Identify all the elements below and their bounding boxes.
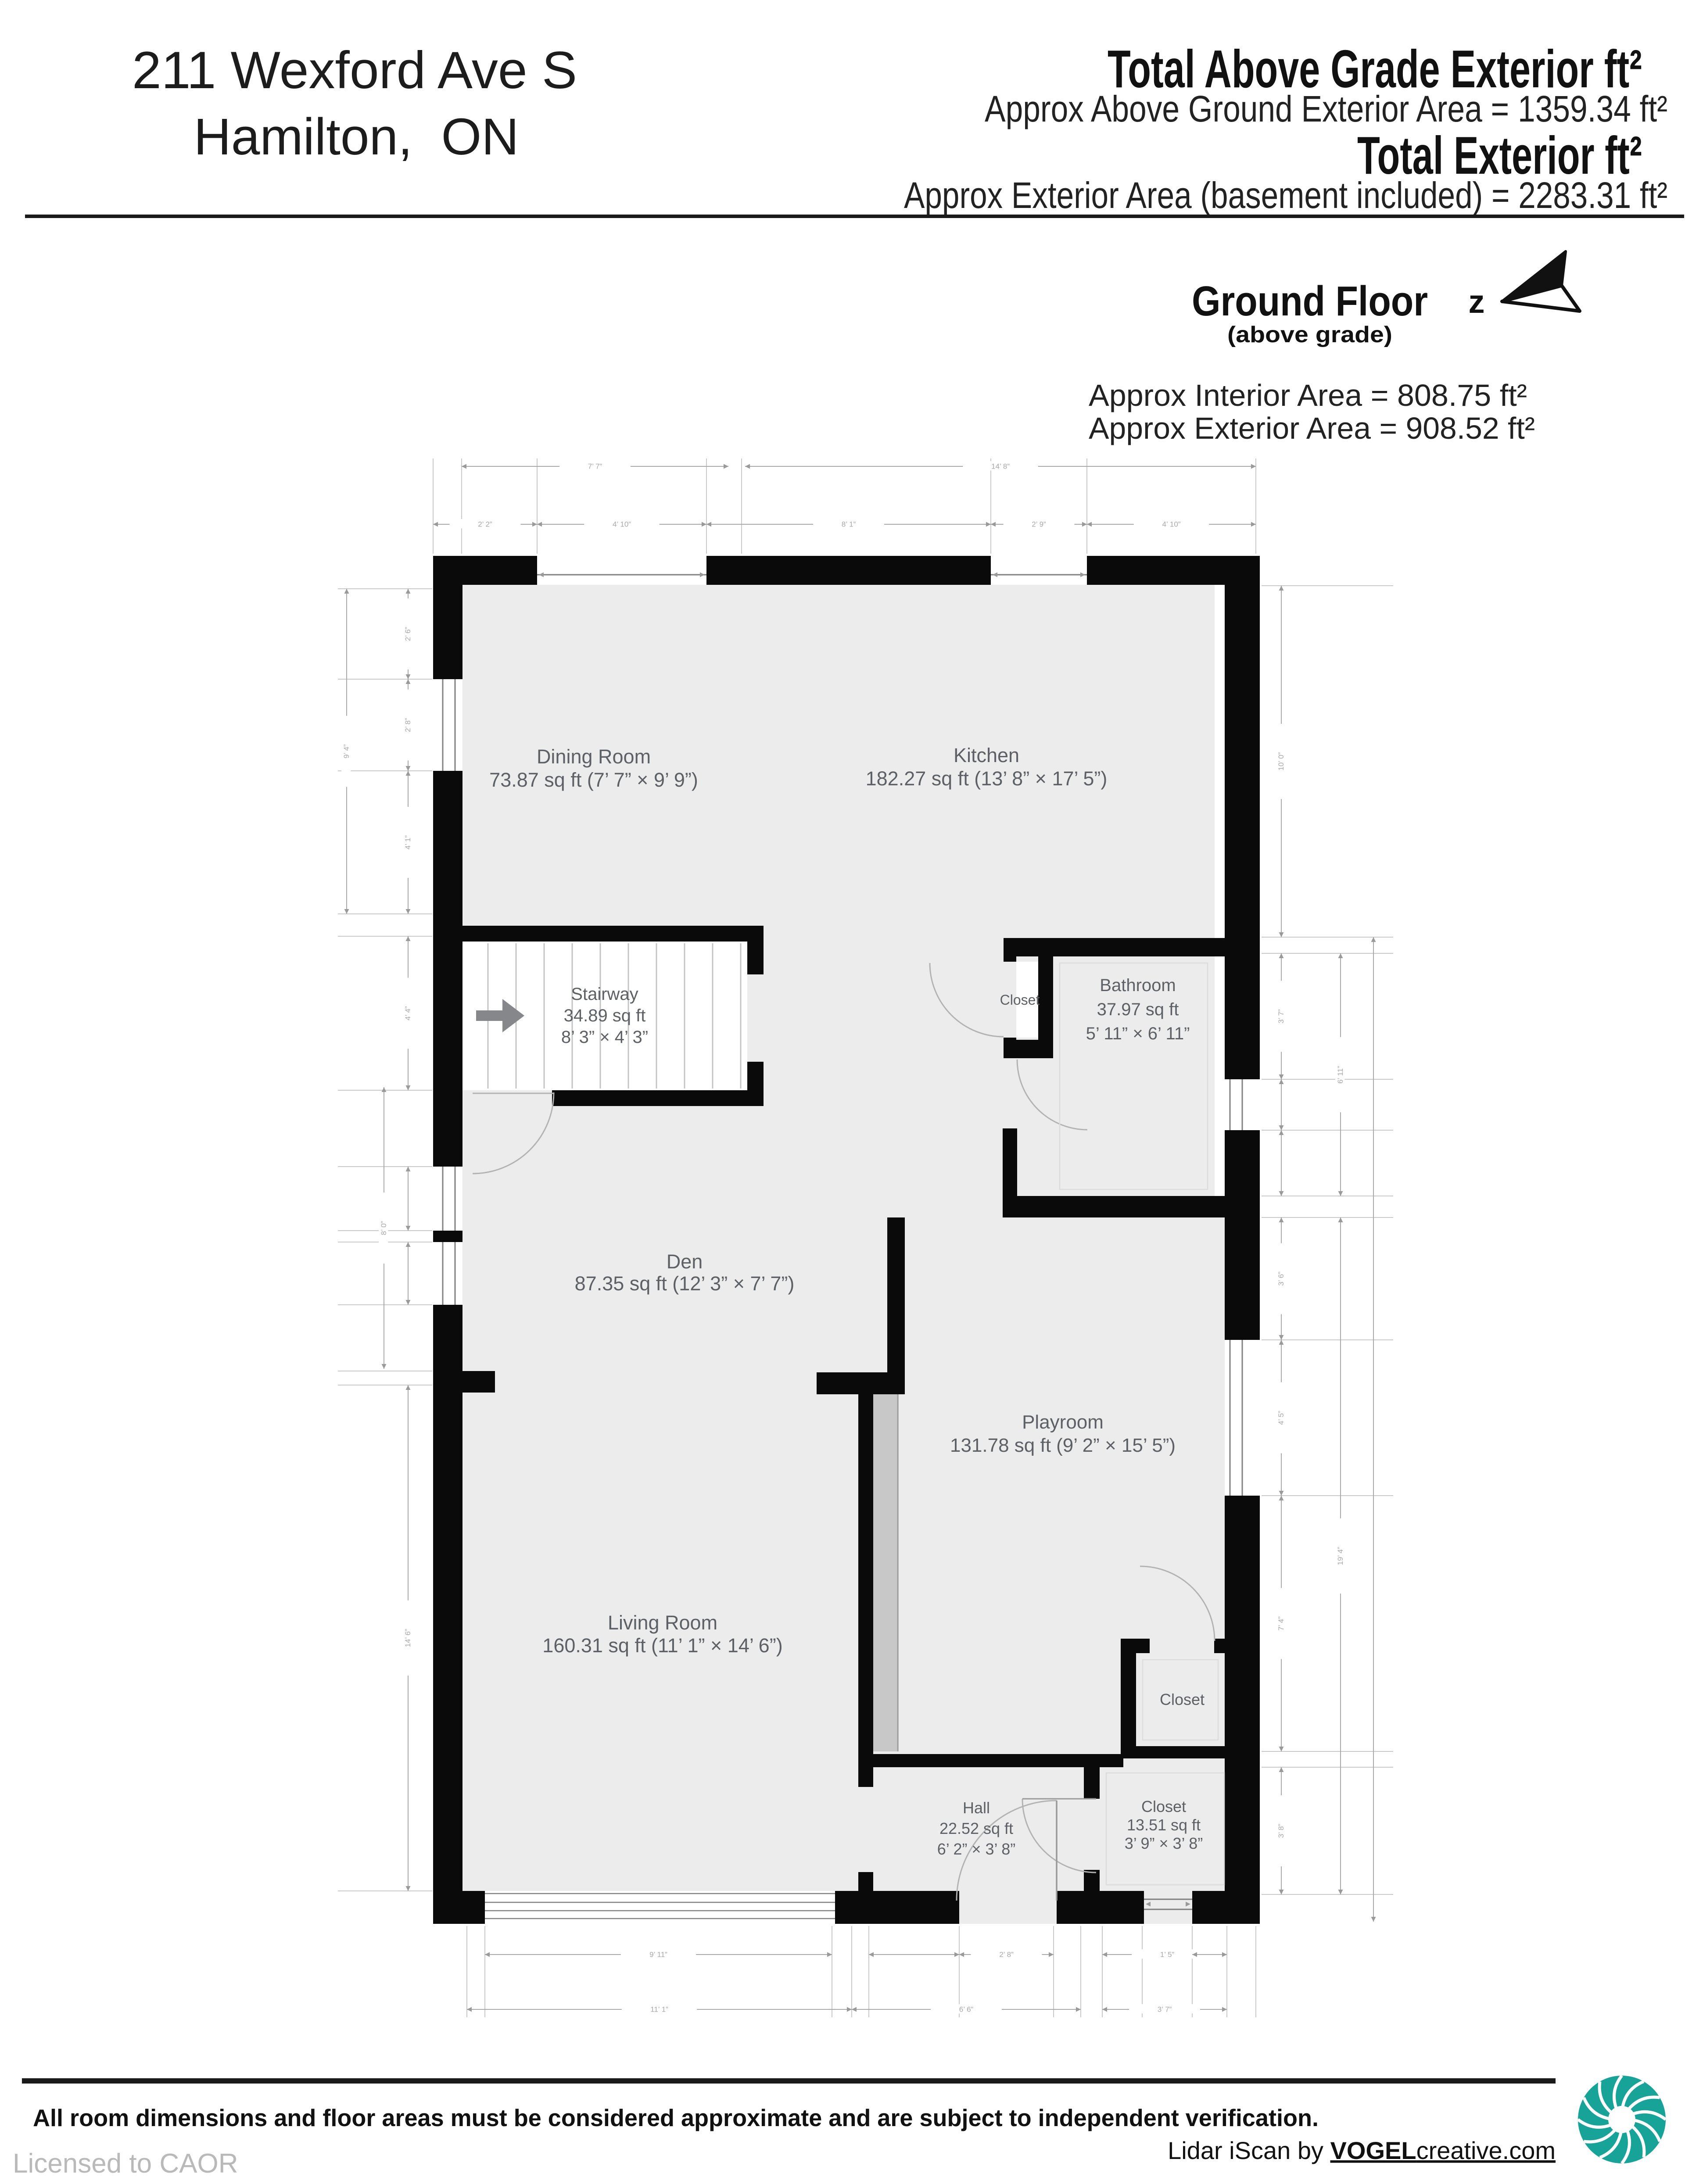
svg-text:10’ 0”: 10’ 0”: [1277, 752, 1285, 770]
svg-text:2’ 2”: 2’ 2”: [478, 520, 492, 528]
svg-text:Ground Floor: Ground Floor: [1192, 278, 1428, 325]
svg-text:2’ 8”: 2’ 8”: [404, 718, 412, 732]
svg-text:Kitchen: Kitchen: [954, 744, 1019, 766]
svg-text:131.78 sq ft (9’ 2” × 15’ 5”): 131.78 sq ft (9’ 2” × 15’ 5”): [950, 1435, 1176, 1456]
svg-text:3’ 7”: 3’ 7”: [1158, 2005, 1172, 2013]
svg-text:2’ 6”: 2’ 6”: [404, 627, 412, 641]
svg-text:4’ 10”: 4’ 10”: [613, 520, 631, 528]
svg-text:Approx Exterior Area = 908.52: Approx Exterior Area = 908.52 ft²: [1089, 411, 1535, 445]
svg-text:2’ 9”: 2’ 9”: [1032, 520, 1046, 528]
svg-text:Approx Above Ground Exterior A: Approx Above Ground Exterior Area = 1359…: [985, 88, 1667, 129]
svg-text:8’ 0”: 8’ 0”: [380, 1221, 388, 1235]
svg-text:7’ 7”: 7’ 7”: [588, 462, 602, 470]
svg-text:4’ 4”: 4’ 4”: [404, 1006, 412, 1020]
svg-text:Approx Interior Area = 808.75: Approx Interior Area = 808.75 ft²: [1089, 378, 1527, 412]
svg-text:13.51 sq ft: 13.51 sq ft: [1127, 1816, 1201, 1834]
svg-text:Lidar iScan by VOGELcreative.c: Lidar iScan by VOGELcreative.com: [1168, 2137, 1556, 2164]
svg-text:Dining Room: Dining Room: [537, 745, 651, 768]
svg-text:73.87 sq ft (7’ 7” × 9’ 9”): 73.87 sq ft (7’ 7” × 9’ 9”): [489, 769, 698, 791]
svg-text:z: z: [1469, 283, 1485, 320]
svg-text:Closet: Closet: [1141, 1797, 1186, 1815]
svg-text:Living Room: Living Room: [608, 1611, 717, 1634]
svg-text:All room dimensions and floor: All room dimensions and floor areas must…: [33, 2104, 1319, 2131]
svg-text:1’ 5”: 1’ 5”: [1160, 1950, 1175, 1958]
svg-text:Approx Exterior Area (basement: Approx Exterior Area (basement included)…: [904, 175, 1667, 216]
svg-text:87.35 sq ft (12’ 3” × 7’ 7”): 87.35 sq ft (12’ 3” × 7’ 7”): [575, 1272, 795, 1295]
svg-text:Closet: Closet: [1000, 992, 1040, 1008]
svg-text:3’ 6”: 3’ 6”: [1277, 1271, 1285, 1286]
svg-text:14’ 6”: 14’ 6”: [404, 1629, 412, 1647]
svg-text:Licensed to CAOR: Licensed to CAOR: [13, 2148, 238, 2179]
svg-text:Playroom: Playroom: [1022, 1411, 1104, 1433]
svg-text:Hamilton, ON: Hamilton, ON: [194, 108, 519, 166]
svg-text:8’ 3” × 4’ 3”: 8’ 3” × 4’ 3”: [561, 1028, 648, 1047]
svg-text:14’ 8”: 14’ 8”: [991, 462, 1010, 470]
svg-text:19’ 4”: 19’ 4”: [1336, 1547, 1344, 1565]
svg-text:Hall: Hall: [963, 1799, 990, 1817]
svg-text:4’ 1”: 4’ 1”: [404, 835, 412, 849]
svg-text:(above grade): (above grade): [1227, 322, 1392, 347]
svg-text:5’ 11” × 6’ 11”: 5’ 11” × 6’ 11”: [1086, 1024, 1190, 1043]
svg-text:182.27 sq ft (13’ 8” × 17’ 5”): 182.27 sq ft (13’ 8” × 17’ 5”): [866, 767, 1108, 790]
svg-text:6’ 2” × 3’ 8”: 6’ 2” × 3’ 8”: [937, 1840, 1015, 1858]
svg-text:160.31 sq ft (11’ 1” × 14’ 6”): 160.31 sq ft (11’ 1” × 14’ 6”): [542, 1634, 782, 1657]
svg-text:3’ 9” × 3’ 8”: 3’ 9” × 3’ 8”: [1125, 1834, 1203, 1852]
svg-text:Stairway: Stairway: [571, 985, 638, 1004]
svg-text:37.97 sq ft: 37.97 sq ft: [1097, 1000, 1179, 1019]
svg-text:8’ 1”: 8’ 1”: [842, 520, 856, 528]
svg-text:4’ 5”: 4’ 5”: [1277, 1411, 1285, 1425]
svg-text:3’ 8”: 3’ 8”: [1277, 1823, 1285, 1838]
svg-text:11’ 1”: 11’ 1”: [650, 2005, 668, 2013]
svg-text:211 Wexford Ave S: 211 Wexford Ave S: [132, 41, 577, 100]
svg-text:4’ 10”: 4’ 10”: [1162, 520, 1181, 528]
svg-text:9’ 4”: 9’ 4”: [342, 744, 351, 759]
svg-text:9’ 11”: 9’ 11”: [649, 1950, 667, 1958]
svg-text:3’ 7”: 3’ 7”: [1277, 1009, 1285, 1024]
svg-text:Den: Den: [667, 1250, 703, 1273]
svg-text:7’ 4”: 7’ 4”: [1277, 1616, 1285, 1631]
svg-text:6’ 6”: 6’ 6”: [959, 2005, 974, 2013]
svg-text:34.89 sq ft: 34.89 sq ft: [564, 1006, 646, 1025]
svg-text:2’ 8”: 2’ 8”: [999, 1950, 1014, 1958]
svg-text:Closet: Closet: [1160, 1690, 1205, 1708]
svg-text:6’ 11”: 6’ 11”: [1336, 1066, 1344, 1084]
svg-text:22.52 sq ft: 22.52 sq ft: [939, 1819, 1013, 1837]
svg-text:Bathroom: Bathroom: [1100, 976, 1176, 995]
